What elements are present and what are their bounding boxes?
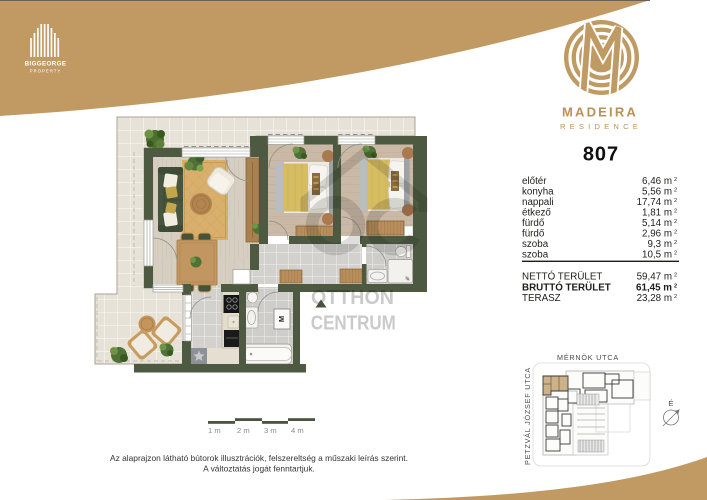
- svg-text:2,96 m: 2,96 m: [642, 228, 672, 239]
- svg-text:CENTRUM: CENTRUM: [311, 312, 396, 335]
- svg-text:étkező: étkező: [522, 207, 551, 218]
- svg-text:3 m: 3 m: [264, 426, 277, 435]
- svg-text:M: M: [277, 316, 286, 322]
- svg-text:konyha: konyha: [522, 186, 554, 197]
- svg-text:2: 2: [674, 198, 677, 204]
- svg-text:9,3 m: 9,3 m: [647, 239, 672, 250]
- svg-text:É: É: [668, 399, 673, 408]
- svg-text:17,74 m: 17,74 m: [637, 197, 672, 208]
- svg-text:2: 2: [674, 187, 677, 193]
- svg-text:2: 2: [674, 229, 677, 235]
- svg-text:2 m: 2 m: [237, 426, 250, 435]
- svg-text:2: 2: [674, 208, 677, 214]
- svg-text:2: 2: [674, 250, 677, 256]
- svg-text:61,45 m: 61,45 m: [636, 282, 672, 293]
- svg-text:PETZVÁL JÓZSEF UTCA: PETZVÁL JÓZSEF UTCA: [523, 367, 532, 465]
- svg-text:2: 2: [674, 283, 677, 289]
- svg-text:szoba: szoba: [522, 239, 549, 250]
- svg-text:807: 807: [583, 144, 619, 166]
- svg-text:fürdő: fürdő: [522, 218, 545, 229]
- svg-text:2: 2: [674, 177, 677, 183]
- svg-text:NETTÓ TERÜLET: NETTÓ TERÜLET: [522, 271, 602, 282]
- svg-text:10,5 m: 10,5 m: [642, 249, 672, 260]
- svg-text:PROPERTY: PROPERTY: [30, 69, 62, 74]
- svg-text:Az alaprajzon látható bútorok: Az alaprajzon látható bútorok illusztrác…: [110, 453, 408, 463]
- svg-text:fürdő: fürdő: [522, 228, 545, 239]
- svg-text:2: 2: [674, 294, 677, 300]
- svg-text:BRUTTÓ TERÜLET: BRUTTÓ TERÜLET: [522, 281, 611, 293]
- svg-text:5,56 m: 5,56 m: [642, 186, 672, 197]
- svg-text:5,14 m: 5,14 m: [642, 218, 672, 229]
- svg-text:A változtatás jogát fenntartju: A változtatás jogát fenntartjuk.: [203, 464, 315, 474]
- svg-text:2: 2: [674, 219, 677, 225]
- svg-text:59,47 m: 59,47 m: [637, 271, 672, 282]
- svg-text:23,28 m: 23,28 m: [637, 293, 672, 304]
- svg-text:MADEIRA: MADEIRA: [562, 105, 638, 120]
- svg-text:6,46 m: 6,46 m: [642, 176, 672, 187]
- svg-text:BIGGEORGE: BIGGEORGE: [25, 61, 67, 68]
- svg-text:1 m: 1 m: [208, 426, 221, 435]
- svg-text:MÉRNÖK UTCA: MÉRNÖK UTCA: [557, 353, 619, 362]
- svg-text:4 m: 4 m: [291, 426, 304, 435]
- svg-text:2: 2: [674, 240, 677, 246]
- svg-text:TERASZ: TERASZ: [522, 293, 561, 304]
- svg-text:1,81 m: 1,81 m: [642, 207, 672, 218]
- svg-text:2: 2: [674, 272, 677, 278]
- svg-text:szoba: szoba: [522, 249, 549, 260]
- svg-text:nappali: nappali: [522, 197, 554, 208]
- svg-text:előtér: előtér: [522, 176, 547, 187]
- svg-text:RESIDENCE: RESIDENCE: [560, 122, 642, 131]
